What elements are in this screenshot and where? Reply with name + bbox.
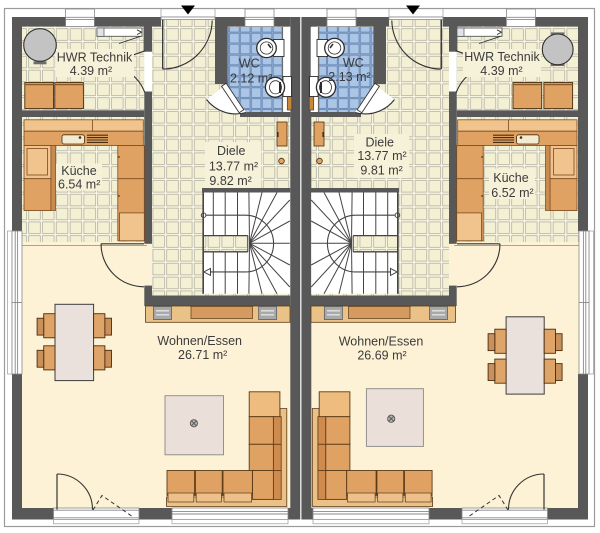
svg-text:HWR Technik: HWR Technik (57, 50, 133, 64)
svg-text:9.81 m²: 9.81 m² (360, 163, 402, 177)
svg-text:9.82 m²: 9.82 m² (209, 174, 251, 188)
svg-text:26.71 m²: 26.71 m² (178, 348, 227, 362)
svg-text:Küche: Küche (493, 171, 528, 185)
svg-text:2.12 m²: 2.12 m² (230, 71, 272, 85)
svg-text:13.77 m²: 13.77 m² (209, 160, 258, 174)
svg-text:Wohnen/Essen: Wohnen/Essen (339, 335, 424, 349)
svg-text:6.54 m²: 6.54 m² (58, 178, 100, 192)
svg-text:Diele: Diele (217, 144, 246, 158)
svg-text:6.52 m²: 6.52 m² (491, 186, 533, 200)
svg-text:Wohnen/Essen: Wohnen/Essen (157, 334, 242, 348)
svg-text:Küche: Küche (61, 164, 96, 178)
svg-text:2.13 m²: 2.13 m² (328, 70, 370, 84)
svg-text:HWR Technik: HWR Technik (464, 50, 540, 64)
svg-text:4.39 m²: 4.39 m² (70, 64, 112, 78)
svg-text:WC: WC (239, 56, 260, 70)
svg-text:4.39 m²: 4.39 m² (480, 64, 522, 78)
svg-text:WC: WC (343, 56, 364, 70)
svg-text:26.69 m²: 26.69 m² (357, 348, 406, 362)
svg-text:13.77 m²: 13.77 m² (357, 149, 406, 163)
svg-text:Diele: Diele (365, 135, 394, 149)
